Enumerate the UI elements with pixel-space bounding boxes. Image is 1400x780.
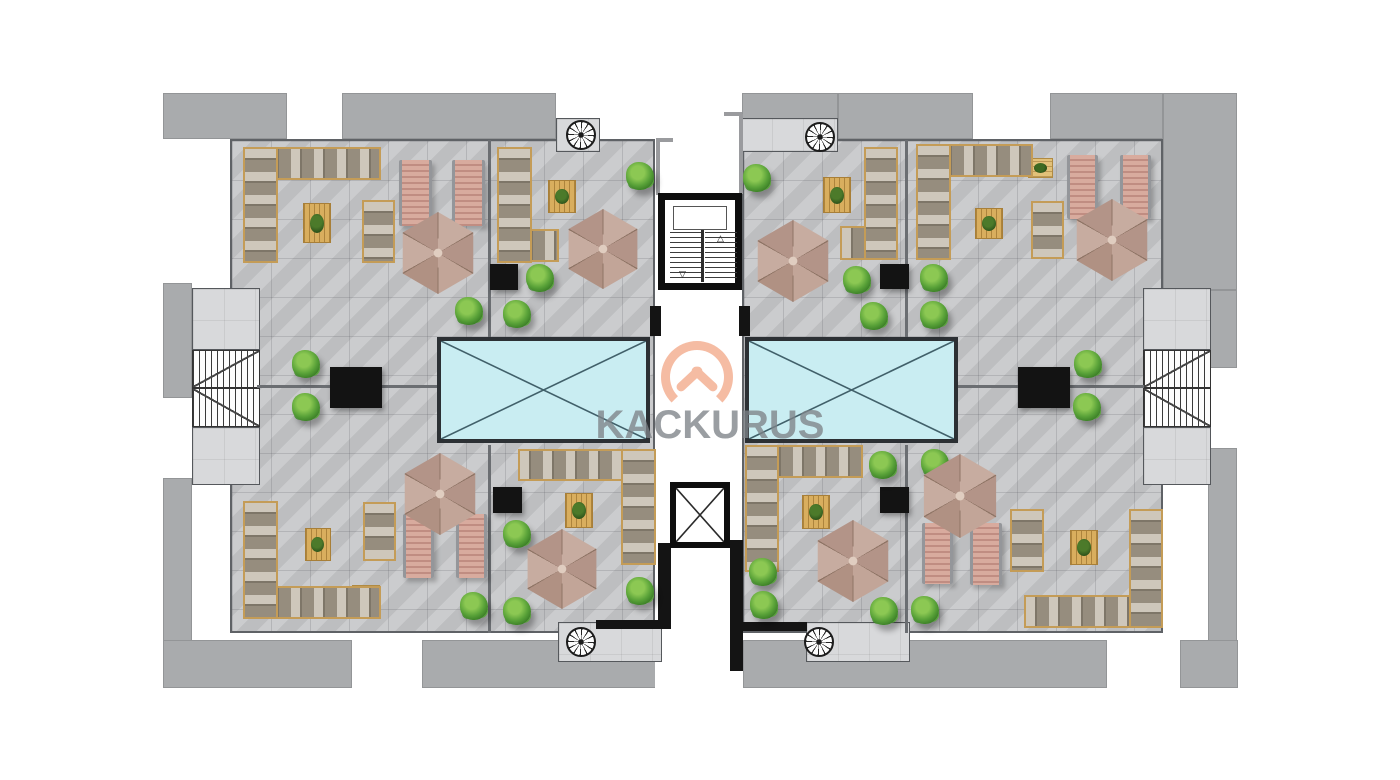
- wood-rug: [802, 495, 830, 529]
- black-table: [330, 367, 382, 408]
- spiral-staircase-icon: [805, 122, 835, 152]
- black-table: [493, 487, 522, 513]
- sofa-section: [621, 449, 656, 565]
- potted-plant: [503, 597, 531, 625]
- potted-plant: [869, 451, 897, 479]
- sofa-section: [362, 200, 395, 263]
- potted-plant: [626, 577, 654, 605]
- black-table: [490, 264, 518, 290]
- spiral-staircase-icon: [566, 627, 596, 657]
- sun-lounger: [456, 514, 487, 578]
- sun-lounger: [452, 160, 485, 226]
- wood-rug: [1070, 530, 1098, 565]
- potted-plant: [526, 264, 554, 292]
- sofa-section: [916, 144, 951, 260]
- potted-plant: [292, 350, 320, 378]
- floor-plan-canvas: △ ▽ KACKURUS: [0, 0, 1400, 780]
- black-table: [880, 487, 909, 513]
- patio-umbrella: [752, 220, 834, 302]
- black-table: [1018, 367, 1070, 408]
- potted-plant: [920, 301, 948, 329]
- sofa-section: [1010, 509, 1044, 572]
- wood-rug: [548, 180, 576, 213]
- watermark: KACKURUS: [560, 330, 860, 450]
- potted-plant: [503, 520, 531, 548]
- wood-rug: [305, 528, 331, 561]
- potted-plant: [843, 266, 871, 294]
- sofa-section: [745, 445, 779, 572]
- potted-plant: [750, 591, 778, 619]
- spiral-staircase-icon: [804, 627, 834, 657]
- watermark-text: KACKURUS: [560, 403, 860, 448]
- sun-lounger: [399, 160, 432, 226]
- sofa-section: [497, 147, 532, 263]
- potted-plant: [911, 596, 939, 624]
- potted-plant: [870, 597, 898, 625]
- potted-plant: [455, 297, 483, 325]
- potted-plant: [1073, 393, 1101, 421]
- black-table: [880, 264, 909, 289]
- patio-umbrella: [812, 520, 894, 602]
- sofa-section: [1031, 201, 1064, 259]
- patio-umbrella: [522, 529, 602, 609]
- spiral-staircase-icon: [566, 120, 596, 150]
- potted-plant: [460, 592, 488, 620]
- wood-rug: [565, 493, 593, 528]
- sofa-section: [363, 502, 396, 561]
- wood-rug: [823, 177, 851, 213]
- wood-rug: [975, 208, 1003, 239]
- potted-plant: [920, 264, 948, 292]
- wood-rug: [303, 203, 331, 243]
- potted-plant: [743, 164, 771, 192]
- potted-plant: [292, 393, 320, 421]
- potted-plant: [860, 302, 888, 330]
- sofa-section: [243, 501, 278, 619]
- sun-lounger: [922, 523, 953, 584]
- potted-plant: [749, 558, 777, 586]
- sun-lounger: [970, 523, 1002, 585]
- sofa-section: [864, 147, 898, 260]
- sofa-section: [243, 147, 278, 263]
- potted-plant: [503, 300, 531, 328]
- patio-umbrella: [563, 209, 643, 289]
- sofa-section: [1129, 509, 1163, 628]
- potted-plant: [1074, 350, 1102, 378]
- sun-lounger: [1067, 155, 1098, 219]
- potted-plant: [626, 162, 654, 190]
